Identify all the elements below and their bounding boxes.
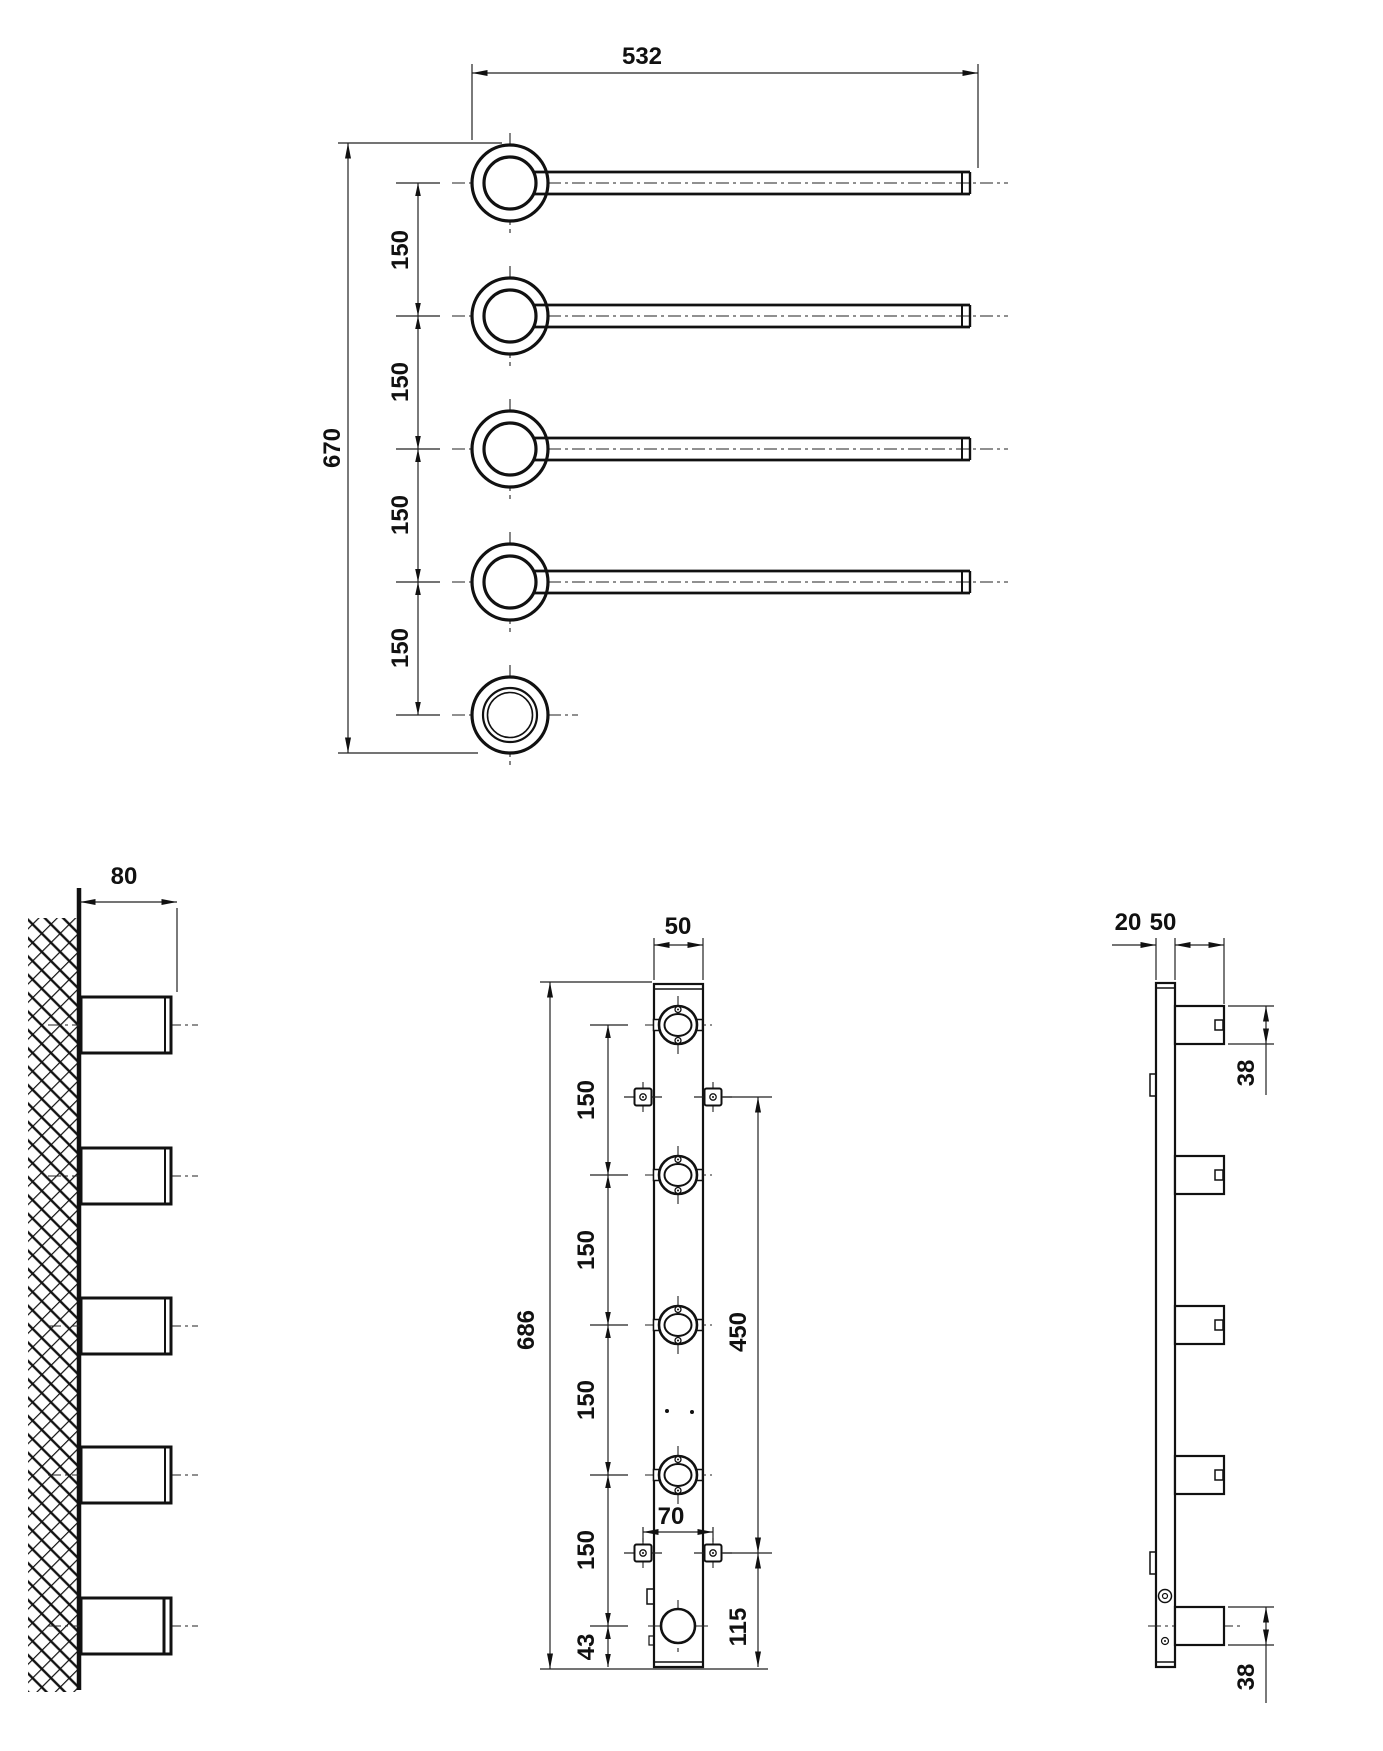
- dim-bar-width: 50: [654, 913, 703, 980]
- arm-side-1: [81, 997, 171, 1053]
- dim-label-150-3: 150: [387, 495, 414, 535]
- front-view: 50 686 150 150 150 150 43: [513, 913, 772, 1669]
- dim-label-f150-1: 150: [573, 1080, 600, 1120]
- dim-label-450: 450: [725, 1312, 752, 1352]
- dim-label-670: 670: [319, 428, 346, 468]
- wall-section-view: 80: [28, 863, 198, 1692]
- dim-label-f150-4: 150: [573, 1530, 600, 1570]
- dim-mount-to-bottom: 115: [725, 1553, 758, 1667]
- towel-rail-drawing: 532 670 150 150 150 150: [0, 0, 1383, 1751]
- pilot-hole-right: [690, 1410, 694, 1414]
- dim-label-70: 70: [658, 1503, 685, 1530]
- arm-profile-4: [1175, 1456, 1224, 1494]
- dim-plan-length: 532: [472, 43, 978, 168]
- dim-label-38-top: 38: [1233, 1060, 1260, 1087]
- dim-label-115: 115: [725, 1608, 752, 1647]
- arm-profile-2: [1175, 1156, 1224, 1194]
- dim-label-50: 50: [665, 913, 692, 940]
- dim-label-150-2: 150: [387, 362, 414, 402]
- plan-view: 532 670 150 150 150 150: [319, 43, 1008, 765]
- dim-plan-pitch-chain: 150 150 150 150: [387, 183, 440, 715]
- dim-front-pitch-chain: 150 150 150 150 43: [573, 1025, 628, 1667]
- wall-hatch: [28, 918, 77, 1692]
- dim-label-80: 80: [111, 863, 138, 890]
- dim-label-20: 20: [1115, 909, 1142, 936]
- dim-protrusion: 80: [80, 863, 177, 992]
- dim-arm-height-bottom: 38: [1228, 1607, 1274, 1703]
- mounting-plate: [1156, 983, 1175, 1667]
- dim-label-f150-3: 150: [573, 1380, 600, 1420]
- arm-profile-1: [1175, 1006, 1224, 1044]
- arm-side-5: [81, 1598, 171, 1654]
- profile-view: 20 50 38 38: [1112, 909, 1274, 1703]
- dim-label-686: 686: [513, 1310, 540, 1350]
- dim-label-150-1: 150: [387, 230, 414, 270]
- dim-label-150-4: 150: [387, 628, 414, 668]
- dim-label-50r: 50: [1150, 909, 1177, 936]
- pilot-hole-left: [665, 1409, 669, 1413]
- dim-label-38-bottom: 38: [1233, 1664, 1260, 1691]
- technical-drawing-sheet: 532 670 150 150 150 150: [0, 0, 1383, 1751]
- dim-label-532: 532: [622, 43, 662, 70]
- arm-side-4: [81, 1447, 171, 1503]
- post-top-row-5: [472, 677, 548, 753]
- dim-label-43: 43: [573, 1634, 600, 1661]
- dim-label-f150-2: 150: [573, 1230, 600, 1270]
- arm-profile-3: [1175, 1306, 1224, 1344]
- dim-mount-span: 450: [723, 1097, 772, 1553]
- arm-side-2: [81, 1148, 171, 1204]
- arm-side-3: [81, 1298, 171, 1354]
- dim-arm-height-top: 38: [1228, 1006, 1274, 1095]
